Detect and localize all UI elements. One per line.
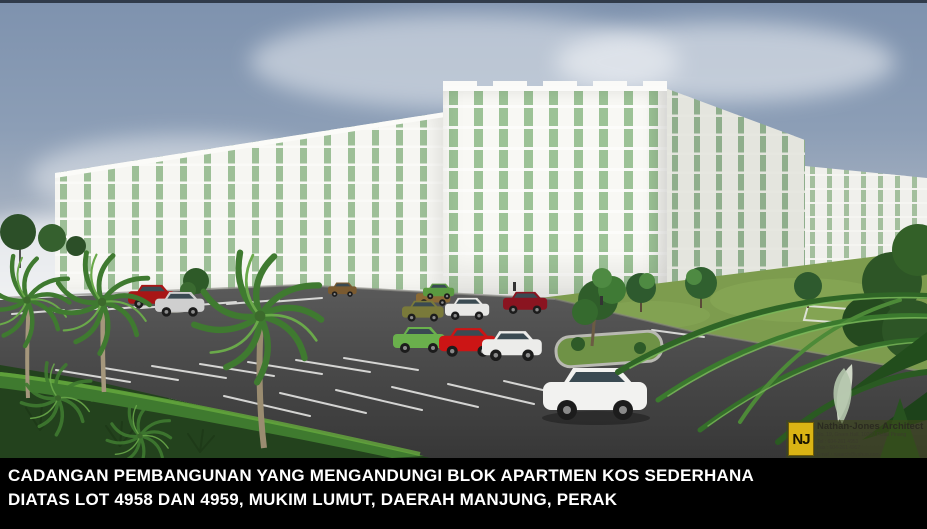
palm-small-2	[107, 404, 171, 458]
caption-line-1: CADANGAN PEMBANGUNAN YANG MENGANDUNGI BL…	[8, 464, 927, 488]
architect-email: Email : njaarch@yahoo.com	[817, 453, 923, 458]
caption-line-2: DIATAS LOT 4958 DAN 4959, MUKIM LUMUT, D…	[8, 488, 927, 512]
presentation-slide: NJ Nathan-Jones Architect No. 19, Green …	[0, 0, 927, 529]
palm-small-1	[21, 363, 92, 435]
architect-address: No. 19, Green Hall, 10200 Pulau Pinang	[817, 433, 923, 438]
image-border	[0, 0, 927, 3]
nj-logo-icon: NJ	[788, 422, 814, 456]
architectural-rendering: NJ Nathan-Jones Architect No. 19, Green …	[0, 0, 927, 458]
architect-tel: Tel : 604-261 4953	[817, 440, 923, 445]
architect-stamp: NJ Nathan-Jones Architect No. 19, Green …	[786, 420, 927, 458]
car-white-foreground	[543, 368, 647, 420]
apartment-block-center	[443, 86, 667, 297]
caption-bar: CADANGAN PEMBANGUNAN YANG MENGANDUNGI BL…	[0, 458, 927, 529]
landscaped-slope	[0, 365, 430, 458]
architect-fax: Fax : 604-261 4957	[817, 446, 923, 451]
architect-firm-name: Nathan-Jones Architect	[817, 422, 923, 432]
